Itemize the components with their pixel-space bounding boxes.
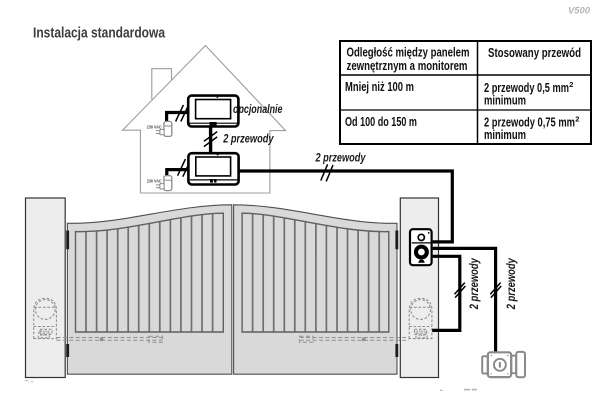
svg-text:Od 100 do 150 m: Od 100 do 150 m bbox=[345, 115, 417, 129]
svg-text:2 przewody: 2 przewody bbox=[504, 257, 518, 310]
svg-text:2 przewody: 2 przewody bbox=[315, 150, 367, 164]
svg-text:2 przewody: 2 przewody bbox=[222, 132, 274, 146]
svg-text:Odległość między panelem: Odległość między panelem bbox=[347, 46, 470, 60]
svg-text:2: 2 bbox=[569, 80, 573, 89]
svg-text:2 przewody: 2 przewody bbox=[467, 257, 481, 310]
svg-text:Mniej niż 100 m: Mniej niż 100 m bbox=[345, 80, 414, 94]
svg-text:minimum: minimum bbox=[484, 94, 526, 108]
svg-text:minimum: minimum bbox=[484, 128, 526, 142]
svg-text:230 VAC: 230 VAC bbox=[147, 124, 162, 129]
svg-text:opcjonalnie: opcjonalnie bbox=[233, 102, 283, 116]
svg-text:2: 2 bbox=[575, 115, 579, 124]
svg-text:Stosowany przewód: Stosowany przewód bbox=[488, 46, 581, 60]
svg-text:zewnętrznym a monitorem: zewnętrznym a monitorem bbox=[347, 59, 468, 73]
svg-text:V500: V500 bbox=[568, 6, 591, 17]
svg-text:Instalacja standardowa: Instalacja standardowa bbox=[33, 25, 166, 42]
svg-text:230 VAC: 230 VAC bbox=[147, 179, 162, 184]
